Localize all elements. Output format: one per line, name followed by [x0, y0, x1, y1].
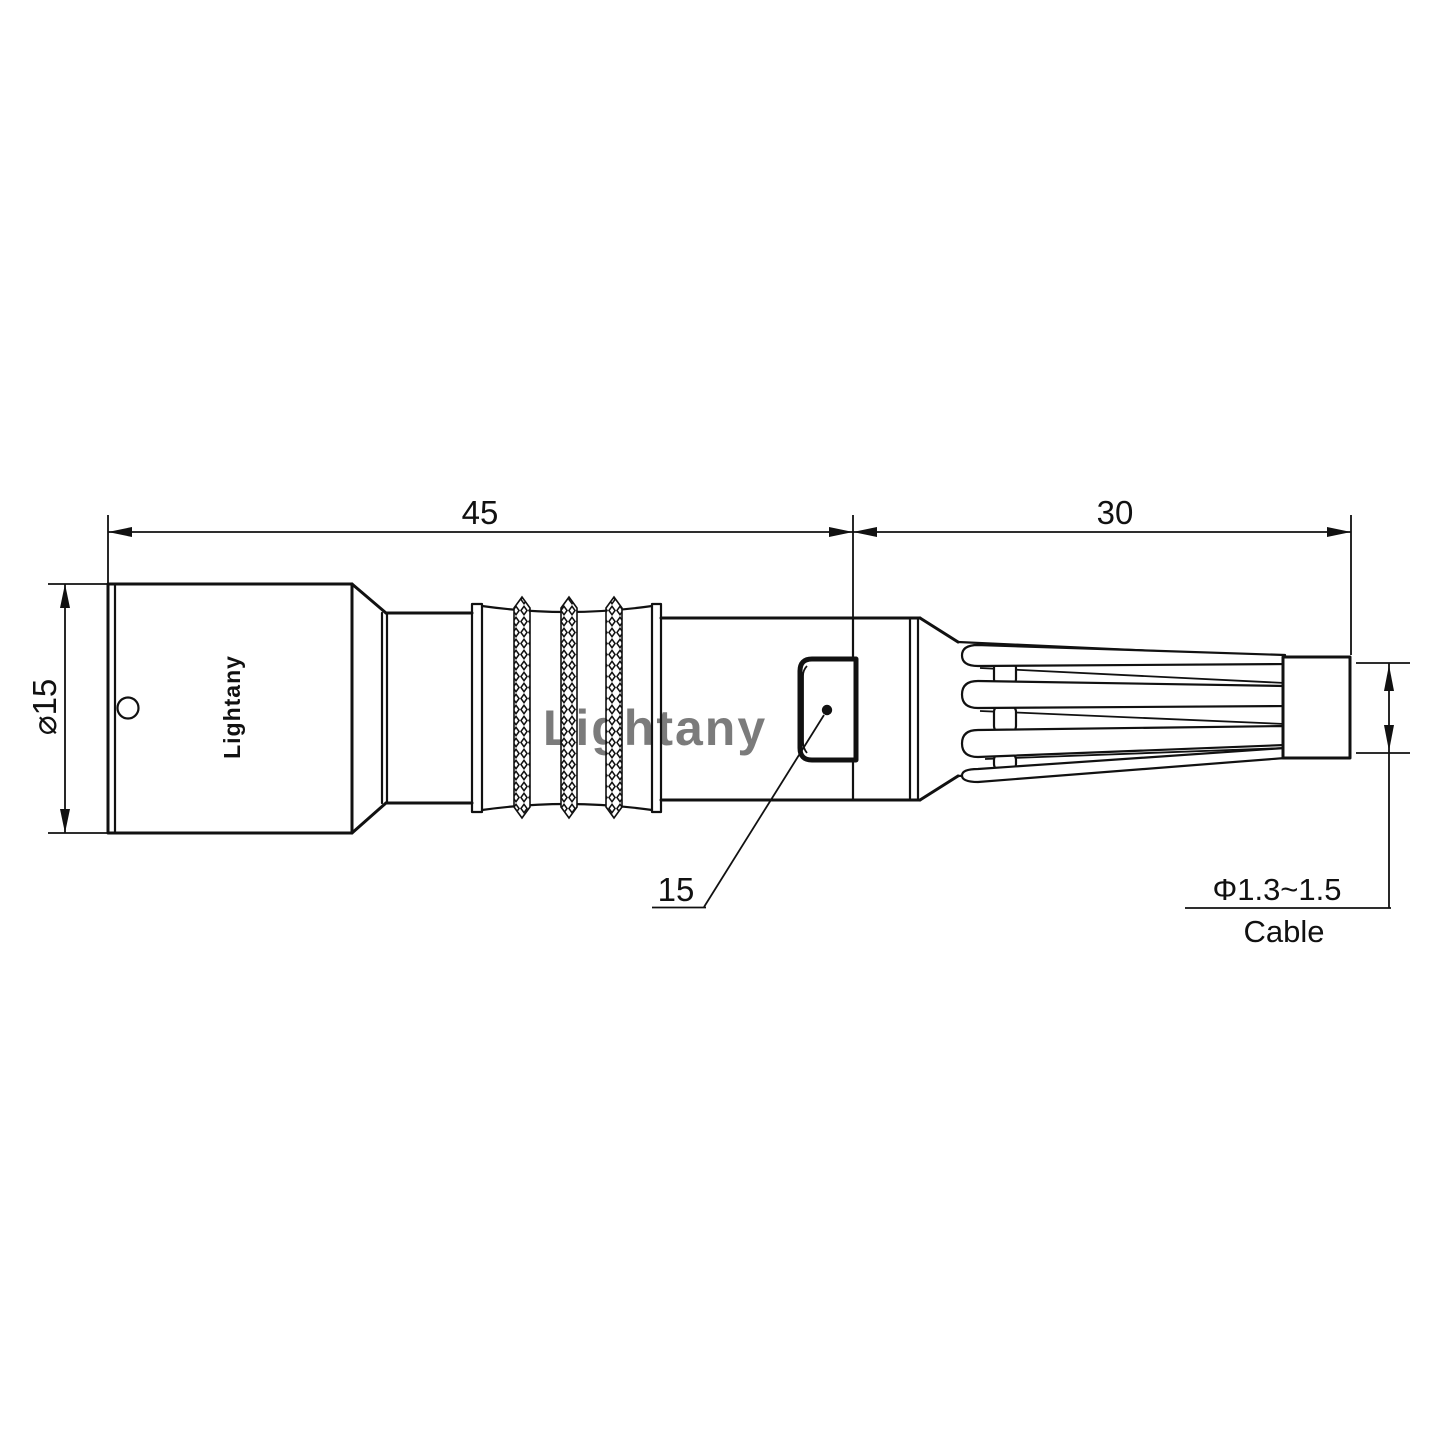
connector-front-body: Lightany — [108, 584, 472, 833]
cable-diameter-label: Φ1.3~1.5 — [1212, 872, 1341, 907]
bend-relief-section — [920, 618, 1350, 800]
cable-exit-block — [1283, 657, 1350, 758]
relief-fin — [962, 645, 1285, 666]
body-marker-circle — [118, 698, 139, 719]
technical-drawing-page: Lightany Lightany — [0, 0, 1440, 1440]
connector-dimension-drawing: Lightany Lightany — [0, 0, 1440, 1440]
knurl-band — [514, 597, 530, 818]
relief-fin — [962, 681, 1285, 708]
front-length-label: 45 — [462, 494, 499, 531]
body-brand-label: Lightany — [219, 655, 245, 759]
rear-length-label: 30 — [1097, 494, 1134, 531]
knurl-band — [606, 597, 622, 818]
cable-label: Cable — [1244, 914, 1325, 949]
leader-dot — [822, 705, 832, 715]
dimension-body-diameter: ⌀15 — [26, 584, 119, 833]
body-diameter-label: ⌀15 — [26, 679, 63, 736]
knurl-band — [561, 597, 577, 818]
dimension-front-length: 45 30 — [108, 494, 1351, 655]
latch-callout-label: 15 — [658, 871, 695, 908]
